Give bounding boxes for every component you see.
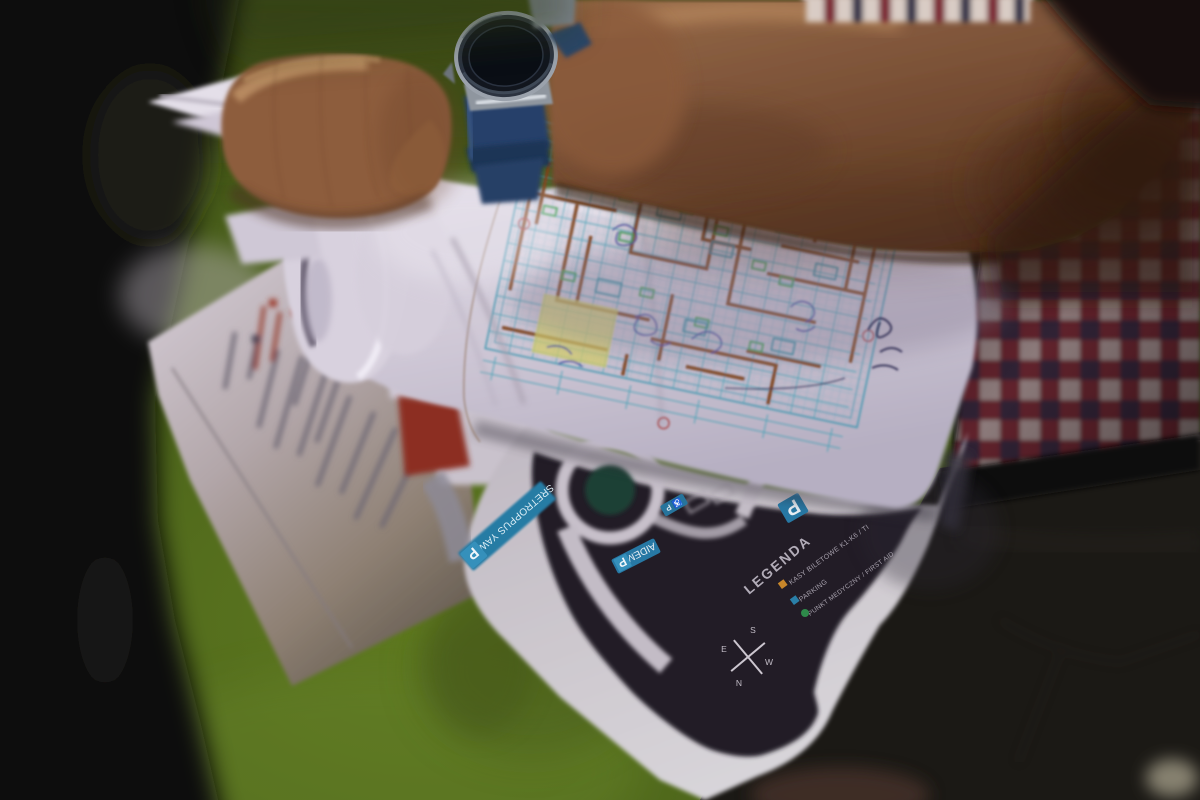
svg-text:N: N	[736, 678, 742, 688]
svg-text:S: S	[750, 625, 756, 635]
svg-text:W: W	[765, 657, 773, 667]
svg-text:E: E	[721, 644, 727, 654]
